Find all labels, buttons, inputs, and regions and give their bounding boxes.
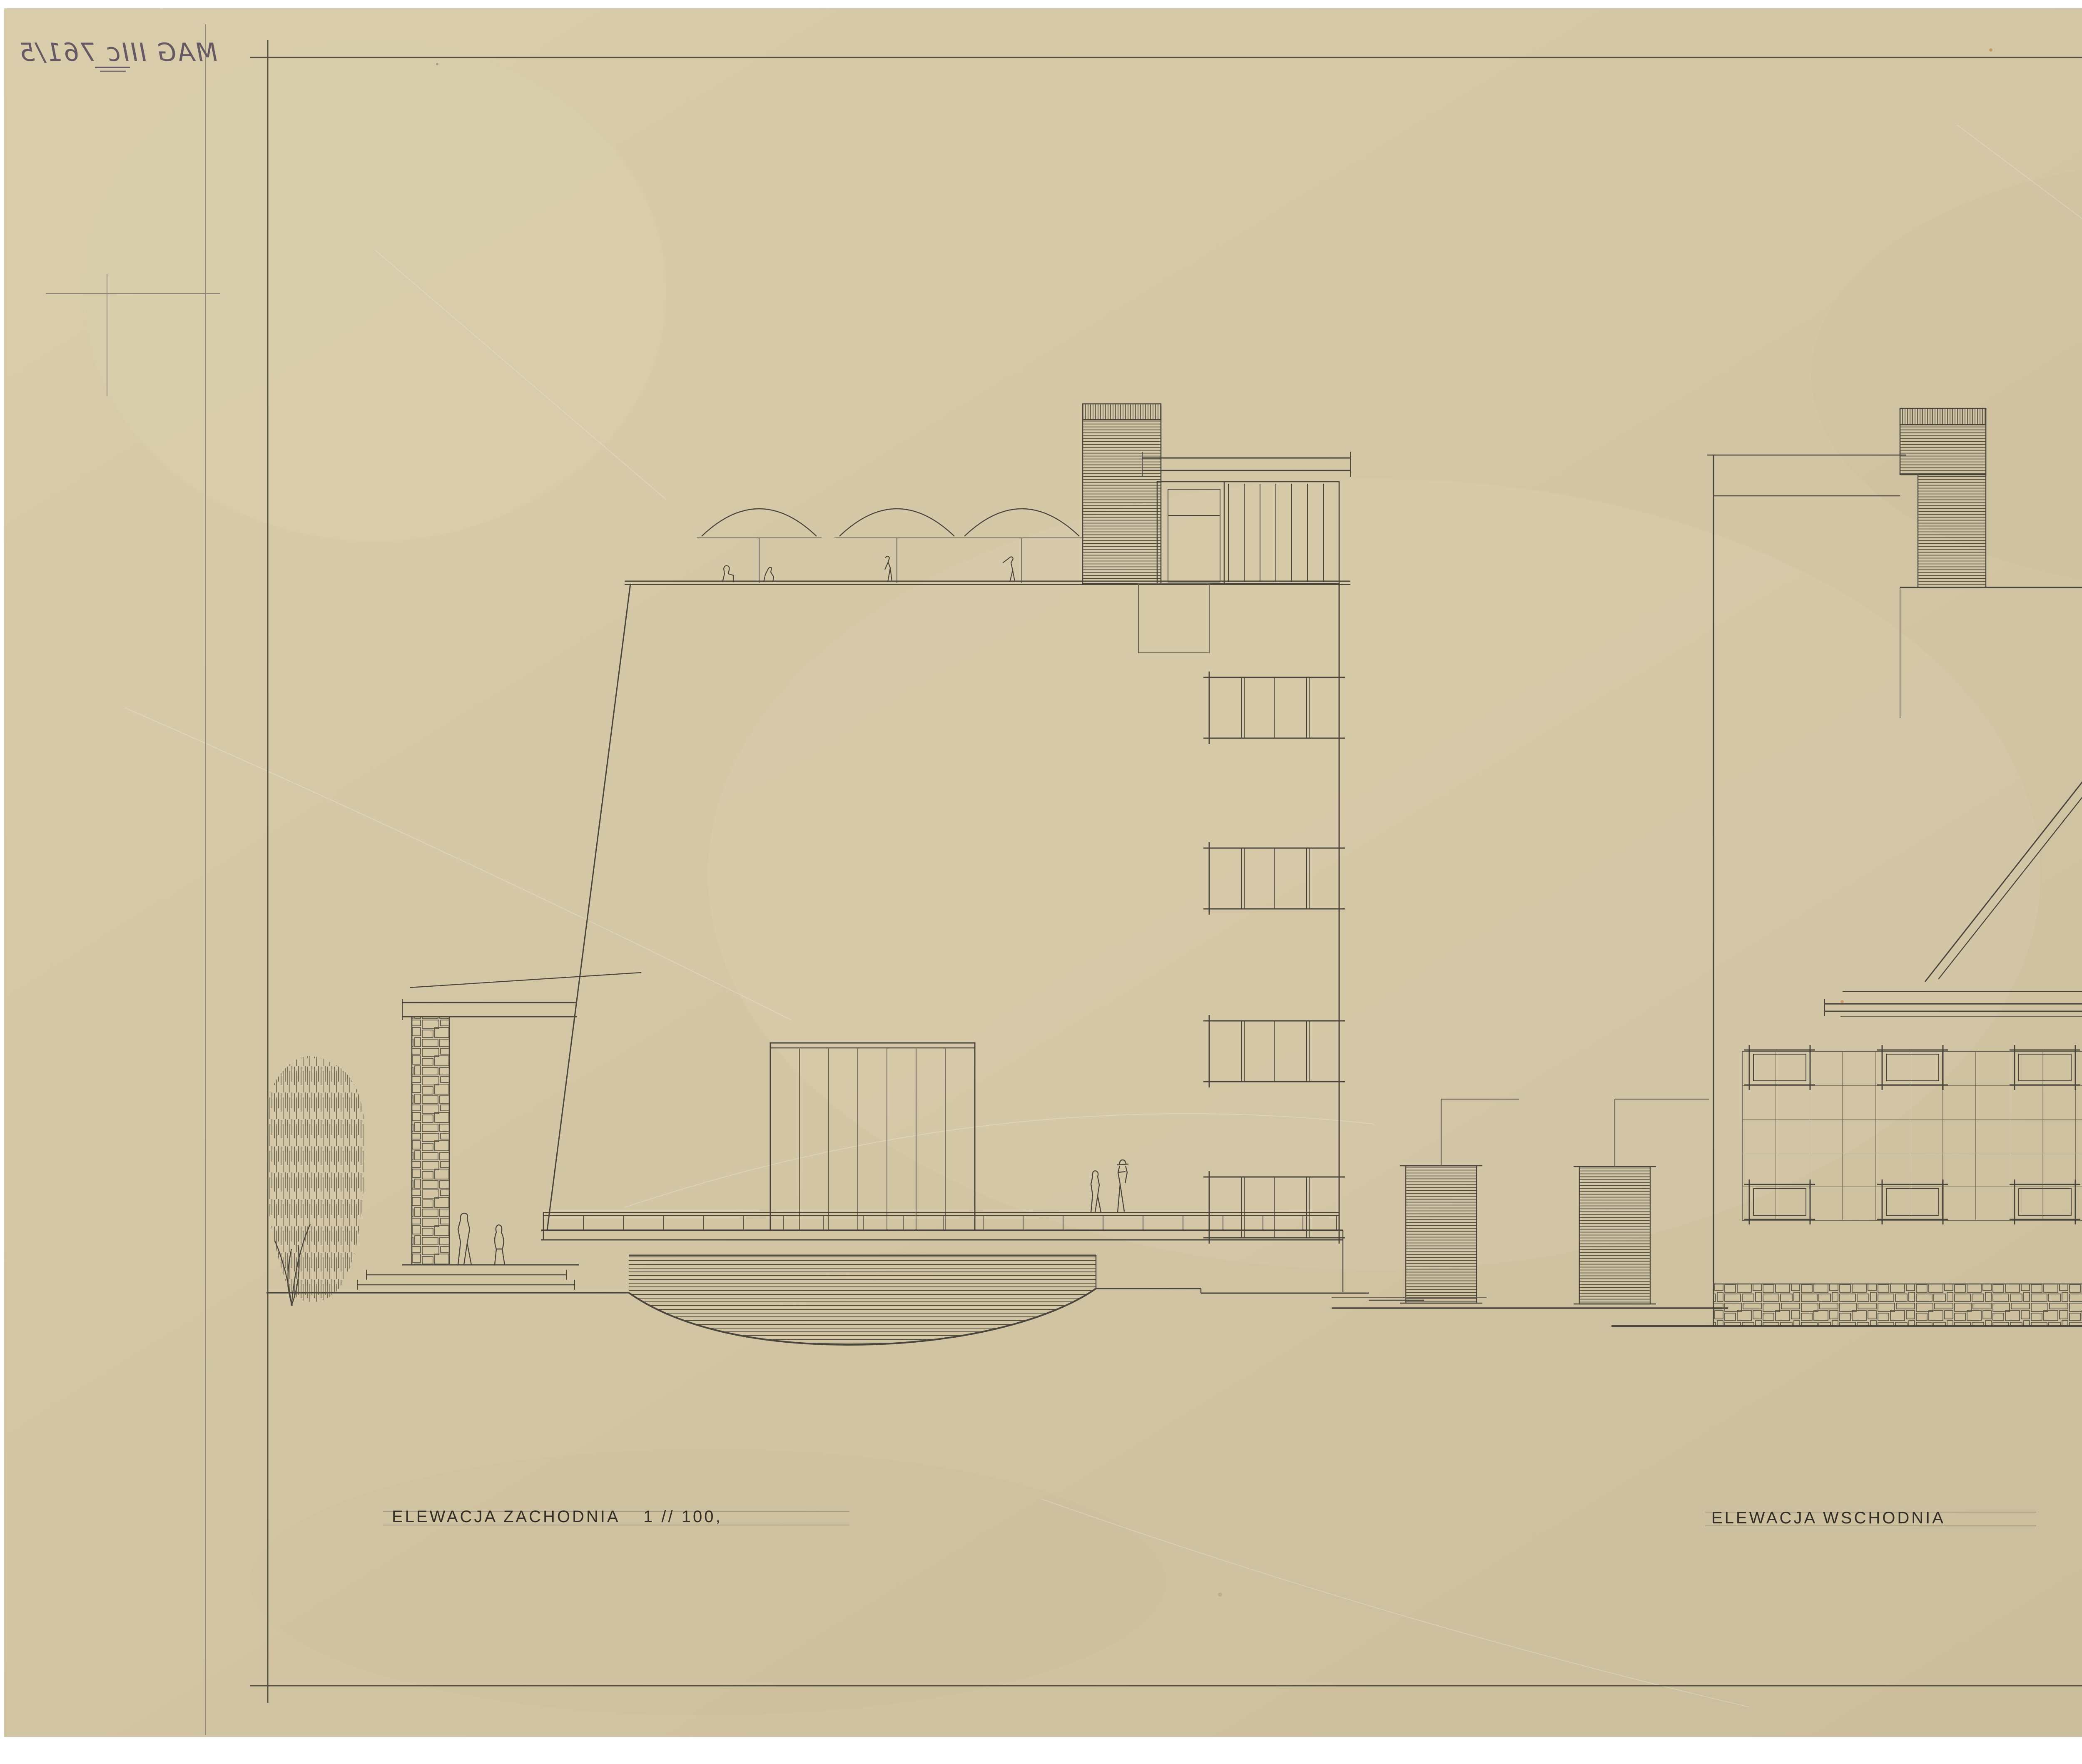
east-elevation-label: ELEWACJA WSCHODNIA [1711,1509,1945,1527]
paper-sheet [4,8,2082,1737]
archive-number-text: MAG IIIc 761/5 [18,38,217,67]
west-chimney [1083,404,1161,584]
hatched-pylon [1574,1167,1656,1304]
scanned-drawing-sheet: MAG IIIc 761/5 [0,0,2082,1764]
stone-pier [412,1017,449,1265]
archive-number: MAG IIIc 761/5 [18,38,217,71]
stone-plinth [1713,1284,2082,1326]
west-scale-label: 1 // 100, [643,1508,722,1526]
west-elevation-label: ELEWACJA ZACHODNIA [392,1508,620,1526]
hatched-pylon [1400,1166,1482,1303]
